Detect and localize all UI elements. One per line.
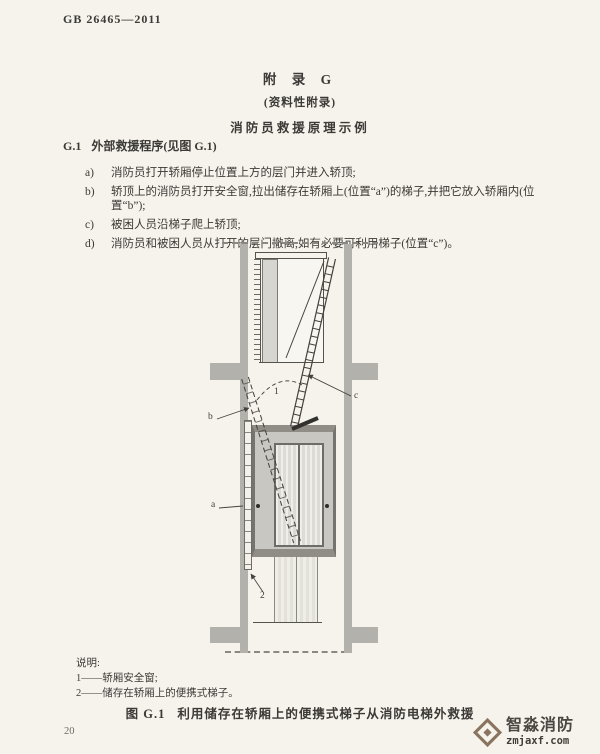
section-heading: G.1外部救援程序(见图 G.1)	[63, 137, 217, 154]
leader-line-2	[251, 574, 263, 592]
label-position-c: c	[354, 391, 358, 401]
appendix-title-block: 附 录 G (资料性附录) 消防员救援原理示例	[0, 68, 600, 136]
safety-window-lid	[292, 418, 318, 429]
watermark-text: 智淼消防 zmjaxf.com	[506, 717, 574, 747]
watermark-logo-icon	[472, 717, 503, 748]
watermark-url: zmjaxf.com	[506, 735, 574, 747]
figure-legend: 说明: 1——轿厢安全窗; 2——储存在轿厢上的便携式梯子。	[76, 656, 239, 701]
label-safety-window: 1	[274, 387, 279, 397]
leader-line-b	[217, 408, 249, 419]
leader-line-c	[308, 375, 351, 396]
label-stored-ladder: 2	[260, 591, 265, 601]
document-page: GB 26465—2011 附 录 G (资料性附录) 消防员救援原理示例 G.…	[0, 0, 600, 754]
list-item: a) 消防员打开轿厢停止位置上方的层门并进入轿顶;	[85, 166, 545, 180]
leader-line-a	[219, 506, 243, 508]
section-number: G.1	[63, 139, 81, 153]
safety-window-swing-arc	[257, 381, 302, 400]
label-position-b: b	[208, 412, 213, 422]
watermark: 智淼消防 zmjaxf.com	[472, 717, 574, 748]
list-item: b) 轿顶上的消防员打开安全窗,拉出储存在轿厢上(位置“a”)的梯子,并把它放入…	[85, 185, 545, 213]
appendix-subtitle: (资料性附录)	[0, 94, 600, 110]
legend-entry: 1——轿厢安全窗;	[76, 671, 239, 686]
doc-number: GB 26465—2011	[63, 12, 162, 27]
list-marker: a)	[85, 166, 111, 180]
watermark-name: 智淼消防	[506, 717, 574, 735]
list-marker: c)	[85, 218, 111, 232]
list-text: 轿顶上的消防员打开安全窗,拉出储存在轿厢上(位置“a”)的梯子,并把它放入轿厢内…	[111, 185, 545, 213]
appendix-heading: 消防员救援原理示例	[0, 117, 600, 136]
elevator-shaft-diagram: 1 2 a b c	[185, 238, 395, 658]
ladder-position-c	[291, 257, 336, 427]
open-door-diagonal	[286, 261, 324, 358]
label-position-a: a	[211, 500, 215, 510]
page-number: 20	[64, 726, 75, 737]
list-text: 被困人员沿梯子爬上轿顶;	[111, 218, 241, 232]
figure-title: 利用储存在轿厢上的便携式梯子从消防电梯外救援	[177, 707, 474, 721]
list-marker: d)	[85, 237, 111, 251]
diagram-linework	[185, 238, 395, 658]
list-text: 消防员打开轿厢停止位置上方的层门并进入轿顶;	[111, 166, 356, 180]
list-marker: b)	[85, 185, 111, 213]
section-title: 外部救援程序(见图 G.1)	[91, 139, 216, 153]
list-item: c) 被困人员沿梯子爬上轿顶;	[85, 218, 545, 232]
legend-title: 说明:	[76, 656, 239, 671]
ladder-position-b	[242, 377, 301, 543]
legend-entry: 2——储存在轿厢上的便携式梯子。	[76, 686, 239, 701]
figure-label: 图 G.1	[126, 707, 166, 721]
appendix-title: 附 录 G	[0, 68, 600, 88]
